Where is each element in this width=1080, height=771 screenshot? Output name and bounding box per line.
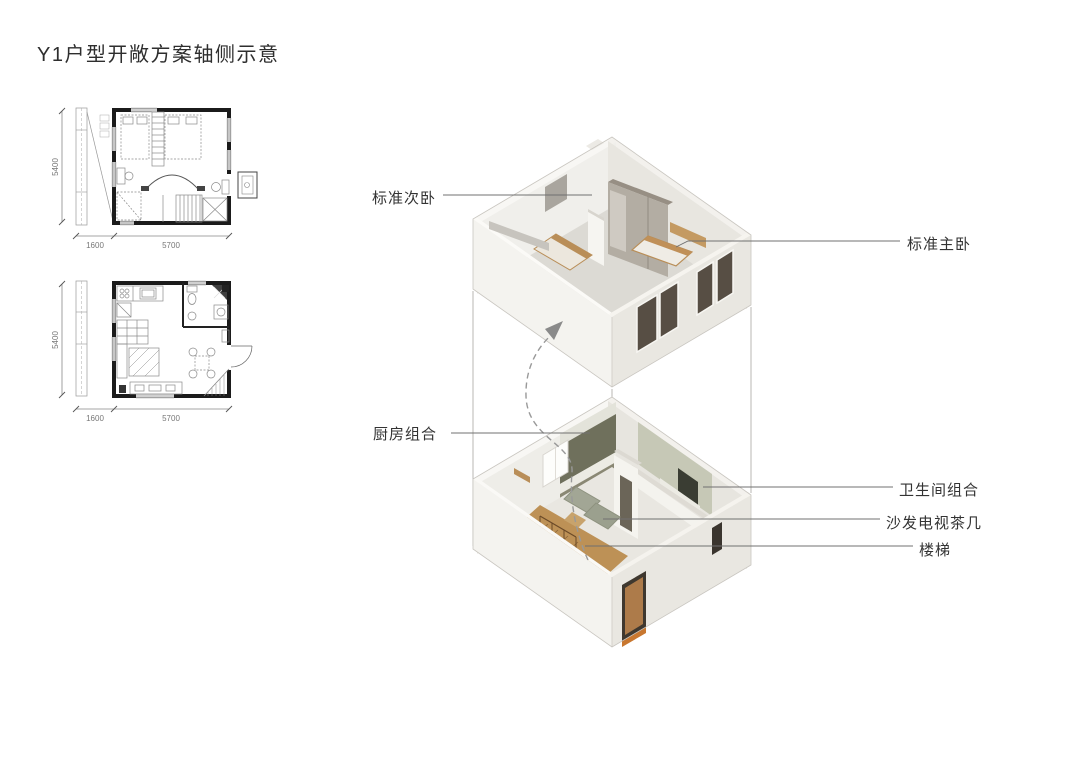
axon-upper-floor	[473, 137, 751, 387]
dim-height-lower: 5400	[51, 331, 60, 349]
plan-tv-bench	[130, 382, 182, 394]
label-sofa-tv-table: 沙发电视茶几	[886, 512, 982, 533]
plan-wardrobe	[152, 112, 164, 166]
dim-left-lower: 1600	[86, 414, 104, 423]
plan-toilet	[188, 294, 196, 305]
page-title: Y1户型开敞方案轴侧示意	[37, 38, 279, 67]
plan-dining-table	[195, 356, 209, 370]
page: 5400	[0, 0, 1080, 771]
label-stairs: 楼梯	[919, 539, 951, 560]
label-master-bedroom: 标准主卧	[907, 233, 971, 254]
plan-sofa	[117, 344, 127, 378]
axon-lower-floor	[473, 397, 751, 647]
plan-entry-door	[231, 346, 252, 367]
floor-plan-lower: 5400	[51, 280, 252, 423]
dim-main-lower: 5700	[162, 414, 180, 423]
plan-curved-wall	[145, 175, 199, 190]
label-secondary-bedroom: 标准次卧	[372, 187, 436, 208]
plan-basin	[188, 312, 196, 320]
diagram-canvas: 5400	[0, 0, 1080, 771]
dim-main-upper: 5700	[162, 241, 180, 250]
plan-ac-unit	[238, 172, 257, 198]
dim-height-upper: 5400	[51, 158, 60, 176]
dim-left-upper: 1600	[86, 241, 104, 250]
label-bathroom: 卫生间组合	[899, 479, 979, 500]
label-kitchen: 厨房组合	[373, 423, 437, 444]
floor-plan-upper: 5400	[51, 106, 257, 250]
